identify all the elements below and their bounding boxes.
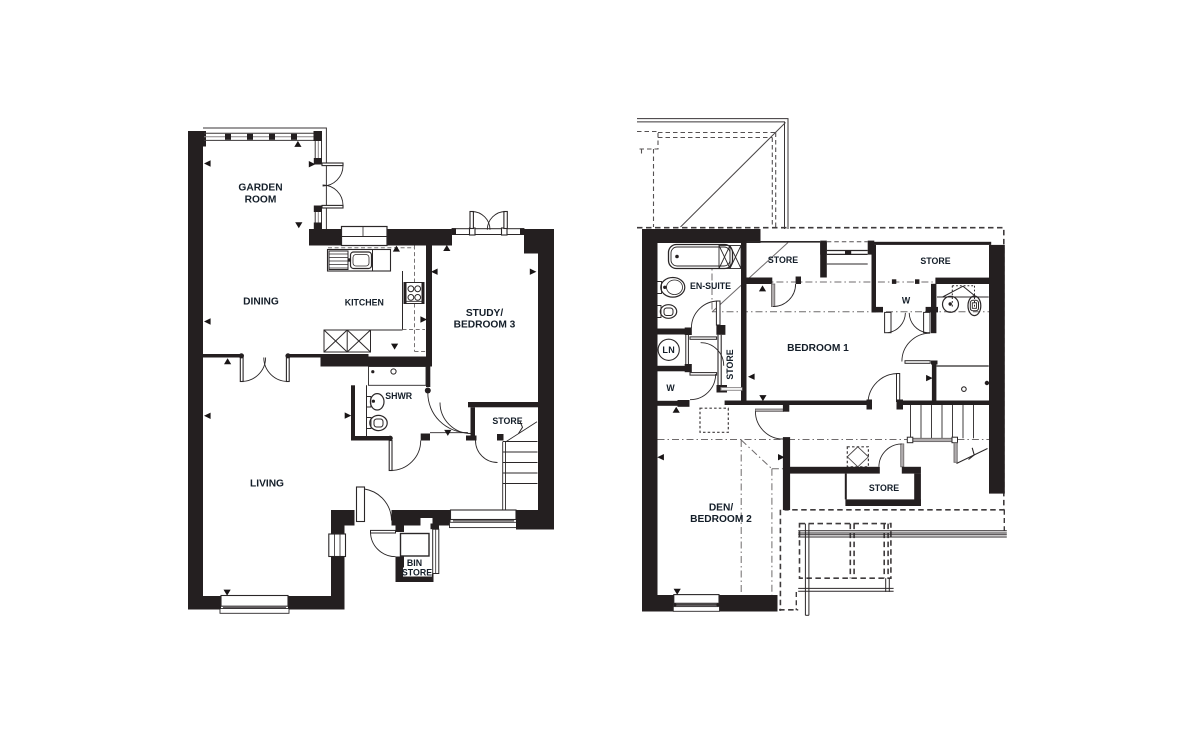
svg-text:BEDROOM 3: BEDROOM 3 (454, 320, 516, 331)
svg-text:DINING: DINING (243, 297, 279, 308)
svg-text:EN-SUITE: EN-SUITE (690, 281, 731, 291)
svg-text:BEDROOM 2: BEDROOM 2 (690, 514, 752, 525)
svg-text:KITCHEN: KITCHEN (345, 298, 384, 308)
svg-text:BEDROOM 1: BEDROOM 1 (787, 343, 849, 354)
svg-text:STORE: STORE (492, 416, 522, 426)
svg-text:LIVING: LIVING (250, 479, 284, 490)
svg-text:ROOM: ROOM (245, 195, 277, 206)
svg-text:STORE: STORE (869, 483, 899, 493)
svg-text:SHWR: SHWR (385, 391, 413, 401)
svg-text:STUDY/: STUDY/ (466, 308, 504, 319)
svg-text:STORE: STORE (768, 255, 798, 265)
svg-text:BIN: BIN (407, 558, 422, 568)
svg-text:W: W (666, 383, 675, 393)
svg-text:STORE: STORE (402, 568, 432, 578)
svg-text:STORE: STORE (920, 256, 950, 266)
svg-text:LN: LN (662, 345, 675, 355)
svg-text:STORE: STORE (725, 349, 735, 379)
svg-text:GARDEN: GARDEN (238, 183, 282, 194)
svg-text:DEN/: DEN/ (709, 503, 734, 514)
svg-text:W: W (902, 296, 911, 306)
